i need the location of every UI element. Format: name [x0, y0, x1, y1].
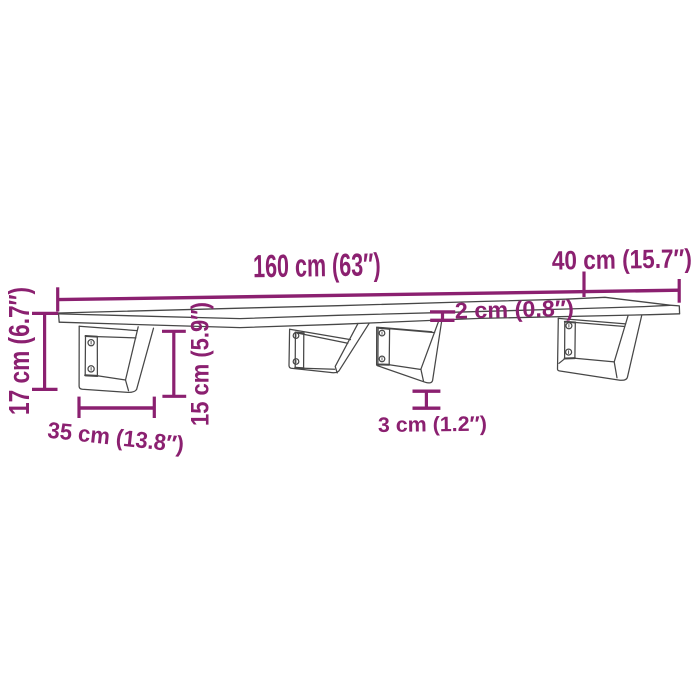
svg-text:2 cm (0.8″): 2 cm (0.8″) [455, 295, 575, 324]
svg-text:17 cm (6.7″): 17 cm (6.7″) [4, 287, 36, 415]
svg-text:160 cm (63″): 160 cm (63″) [253, 246, 381, 284]
svg-text:3 cm (1.2″): 3 cm (1.2″) [378, 413, 487, 437]
svg-text:40 cm (15.7″): 40 cm (15.7″) [552, 243, 692, 275]
svg-text:15 cm (5.9″): 15 cm (5.9″) [188, 302, 215, 426]
